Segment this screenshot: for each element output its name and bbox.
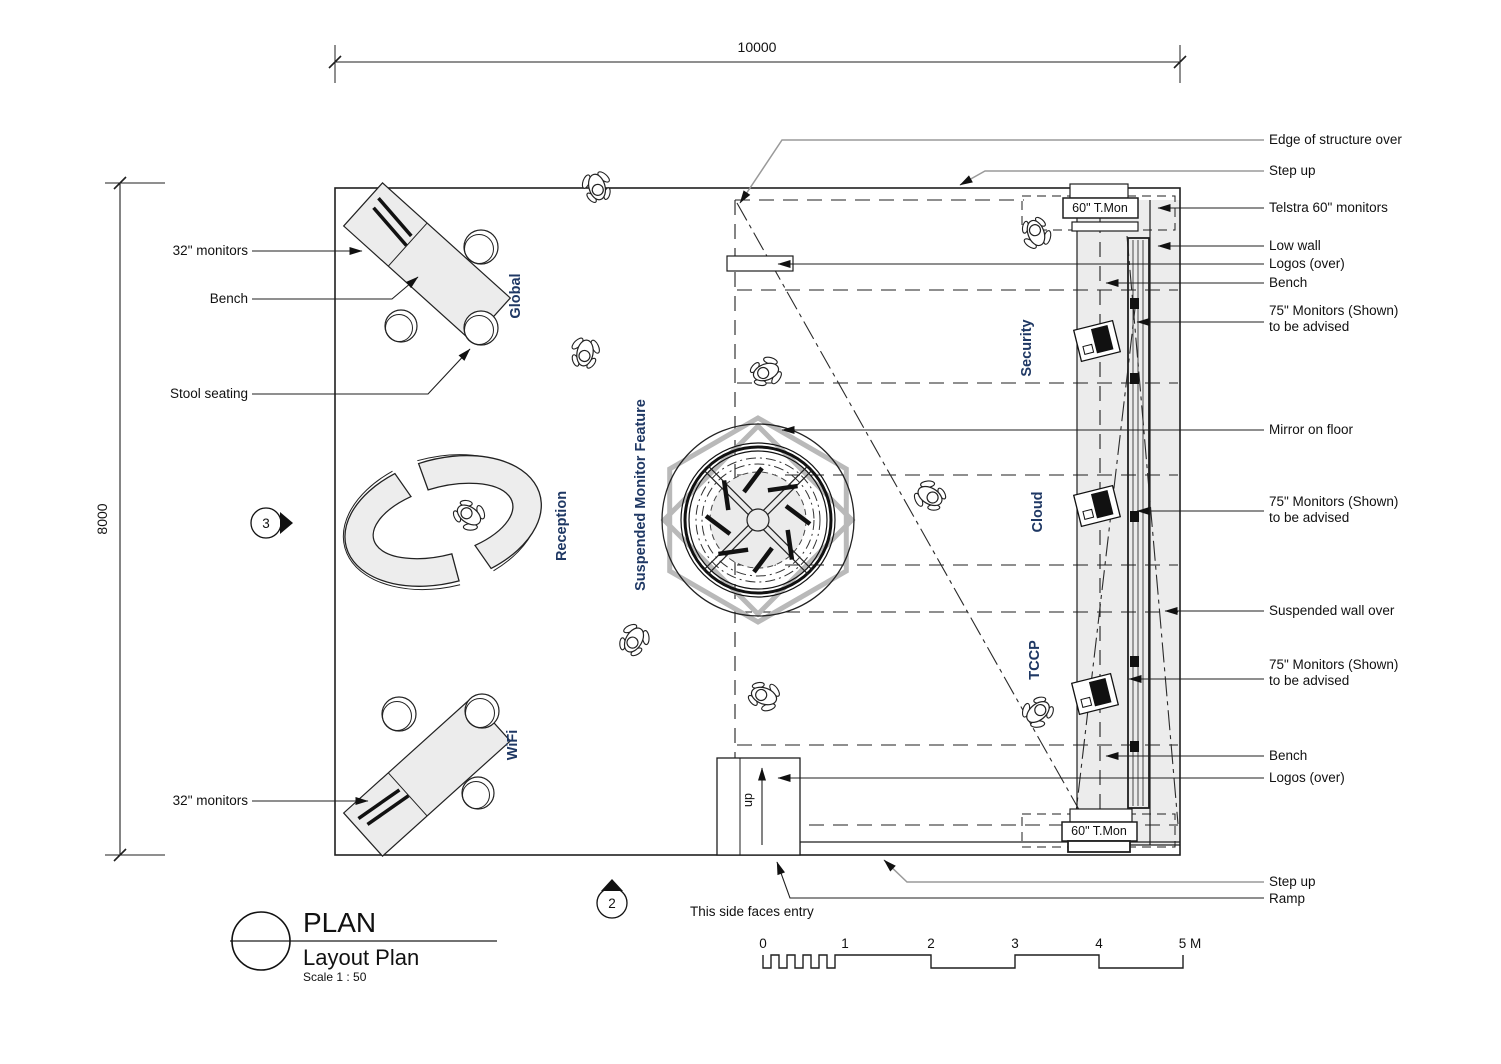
label-mirror-on-floor: Mirror on floor xyxy=(1269,422,1354,437)
dim-height-label: 8000 xyxy=(94,503,110,534)
person-figure xyxy=(567,335,603,371)
person-figure xyxy=(613,619,656,662)
scalebar-2: 2 xyxy=(927,936,935,951)
zone-cloud: Cloud xyxy=(1030,491,1046,532)
label-telstra-monitors: Telstra 60" monitors xyxy=(1269,200,1388,215)
tmon-bottom-label: 60" T.Mon xyxy=(1071,824,1127,838)
label-bench-bottom: Bench xyxy=(1269,748,1307,763)
leaders-right xyxy=(740,140,1264,898)
label-bench-top: Bench xyxy=(1269,275,1307,290)
person-figure xyxy=(578,168,616,206)
label-75-monitors-1b: to be advised xyxy=(1269,319,1349,334)
zone-tccp: TCCP xyxy=(1027,640,1043,680)
label-bench-left: Bench xyxy=(210,291,248,306)
label-low-wall: Low wall xyxy=(1269,238,1321,253)
person-figure xyxy=(909,475,952,518)
dimension-left xyxy=(105,177,165,861)
label-75-monitors-1: 75" Monitors (Shown) xyxy=(1269,303,1398,318)
label-75-monitors-3: 75" Monitors (Shown) xyxy=(1269,657,1398,672)
zone-reception: Reception xyxy=(554,491,570,561)
scalebar-4: 4 xyxy=(1095,936,1103,951)
scalebar-5m: 5 M xyxy=(1179,936,1202,951)
person-figure-receptionist xyxy=(447,493,490,536)
scalebar-3: 3 xyxy=(1011,936,1019,951)
ramp-up-label: up xyxy=(741,793,755,807)
monitor-mount xyxy=(1130,656,1139,667)
person-figure xyxy=(1016,690,1060,734)
plan-subtitle: Layout Plan xyxy=(303,945,419,970)
dim-width-label: 10000 xyxy=(738,39,777,55)
plan-scale-note: Scale 1 : 50 xyxy=(303,970,367,984)
zone-wifi: WiFi xyxy=(505,730,521,760)
scale-bar xyxy=(763,955,1183,968)
suspended-monitor-feature xyxy=(662,418,854,622)
person-figure xyxy=(744,676,784,716)
marker-2-number: 2 xyxy=(608,896,616,911)
label-stool-seating: Stool seating xyxy=(170,386,248,401)
plan-title: PLAN xyxy=(303,907,376,938)
reception-desk xyxy=(328,432,557,611)
zone-suspended-monitor-feature: Suspended Monitor Feature xyxy=(633,399,649,591)
label-75-monitors-2: 75" Monitors (Shown) xyxy=(1269,494,1398,509)
monitor-mount xyxy=(1130,298,1139,309)
label-ramp: Ramp xyxy=(1269,891,1305,906)
scalebar-1: 1 xyxy=(841,936,849,951)
monitor-mount xyxy=(1130,511,1139,522)
label-logos-bottom: Logos (over) xyxy=(1269,770,1345,785)
plan-svg: 10000 8000 32" monitors Bench Stool seat… xyxy=(0,0,1501,1064)
label-32-monitors-bottom: 32" monitors xyxy=(173,793,249,808)
monitor-mount xyxy=(1130,741,1139,752)
monitor-mount xyxy=(1130,373,1139,384)
zone-global: Global xyxy=(508,273,524,318)
label-edge-of-structure: Edge of structure over xyxy=(1269,132,1402,147)
ramp xyxy=(717,758,800,855)
marker-3-number: 3 xyxy=(262,516,270,531)
label-suspended-wall: Suspended wall over xyxy=(1269,603,1395,618)
label-logos-top: Logos (over) xyxy=(1269,256,1345,271)
tmon-top-label: 60" T.Mon xyxy=(1072,201,1128,215)
label-75-monitors-3b: to be advised xyxy=(1269,673,1349,688)
zone-security: Security xyxy=(1019,319,1035,376)
label-step-up-bottom: Step up xyxy=(1269,874,1316,889)
label-75-monitors-2b: to be advised xyxy=(1269,510,1349,525)
entry-note: This side faces entry xyxy=(690,904,814,919)
scalebar-0: 0 xyxy=(759,936,767,951)
view-marker-3 xyxy=(251,508,293,538)
person-figure xyxy=(746,352,786,392)
label-step-up-top: Step up xyxy=(1269,163,1316,178)
layout-plan-drawing: 10000 8000 32" monitors Bench Stool seat… xyxy=(0,0,1501,1064)
label-32-monitors-top: 32" monitors xyxy=(173,243,249,258)
